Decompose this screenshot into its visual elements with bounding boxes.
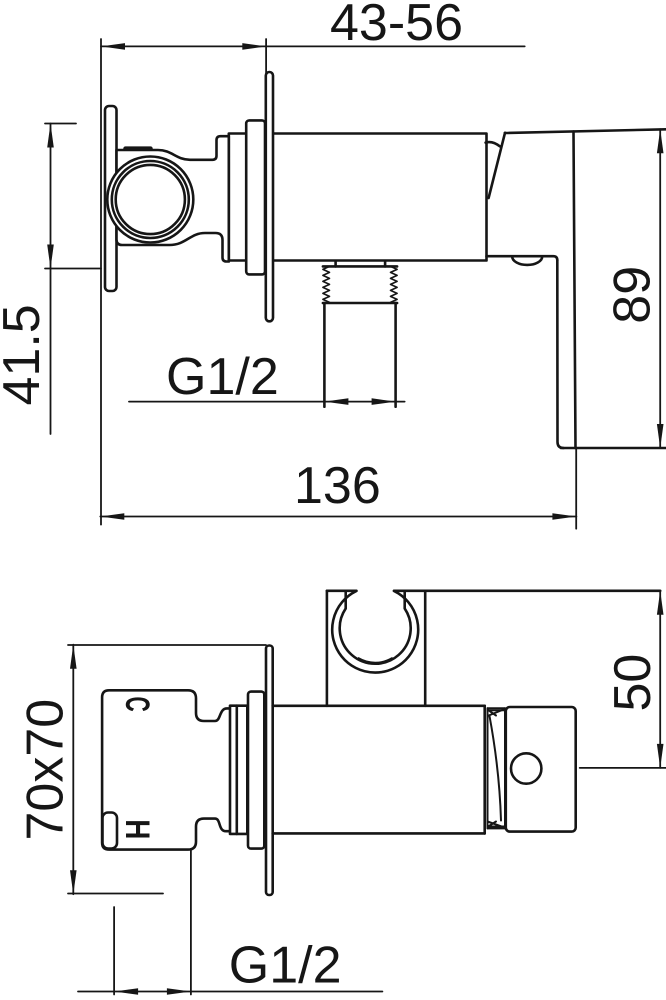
svg-text:136: 136 [294, 457, 381, 515]
svg-text:41.5: 41.5 [0, 304, 51, 405]
svg-text:70x70: 70x70 [17, 699, 75, 841]
svg-text:89: 89 [604, 266, 662, 324]
svg-text:G1/2: G1/2 [229, 937, 342, 995]
svg-text:50: 50 [604, 654, 662, 712]
svg-text:C: C [119, 697, 157, 712]
svg-text:G1/2: G1/2 [166, 348, 279, 406]
svg-text:H: H [118, 819, 156, 839]
svg-text:43-56: 43-56 [330, 0, 463, 52]
